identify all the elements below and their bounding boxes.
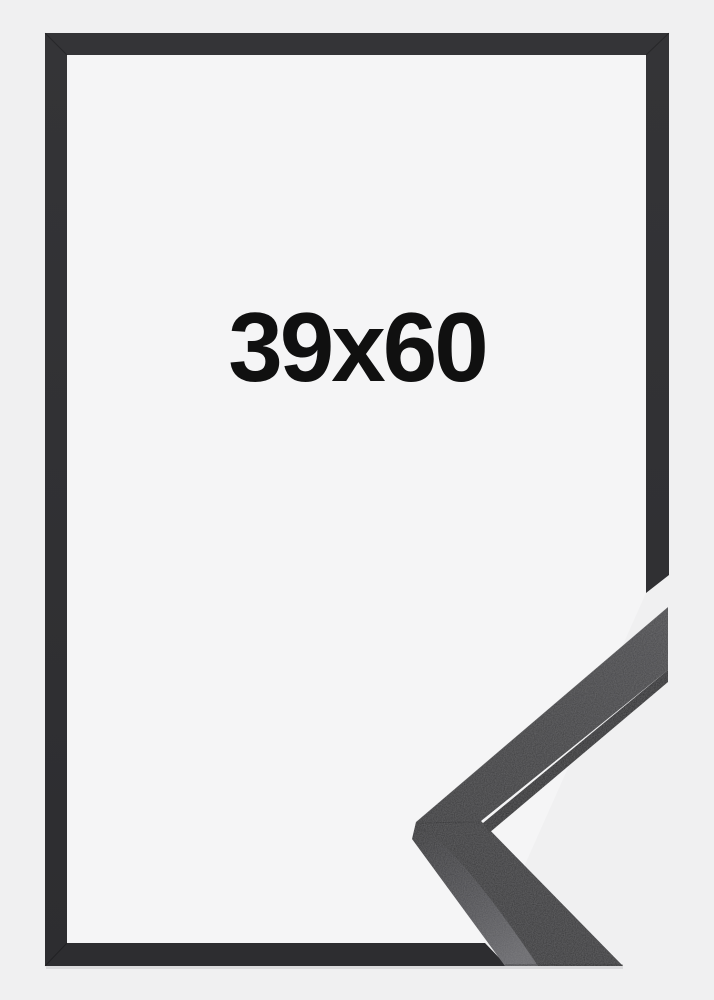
product-image: 39x60 xyxy=(0,0,714,1000)
frame-photo xyxy=(0,0,714,1000)
size-label: 39x60 xyxy=(0,297,714,397)
frame-opening xyxy=(67,55,646,943)
